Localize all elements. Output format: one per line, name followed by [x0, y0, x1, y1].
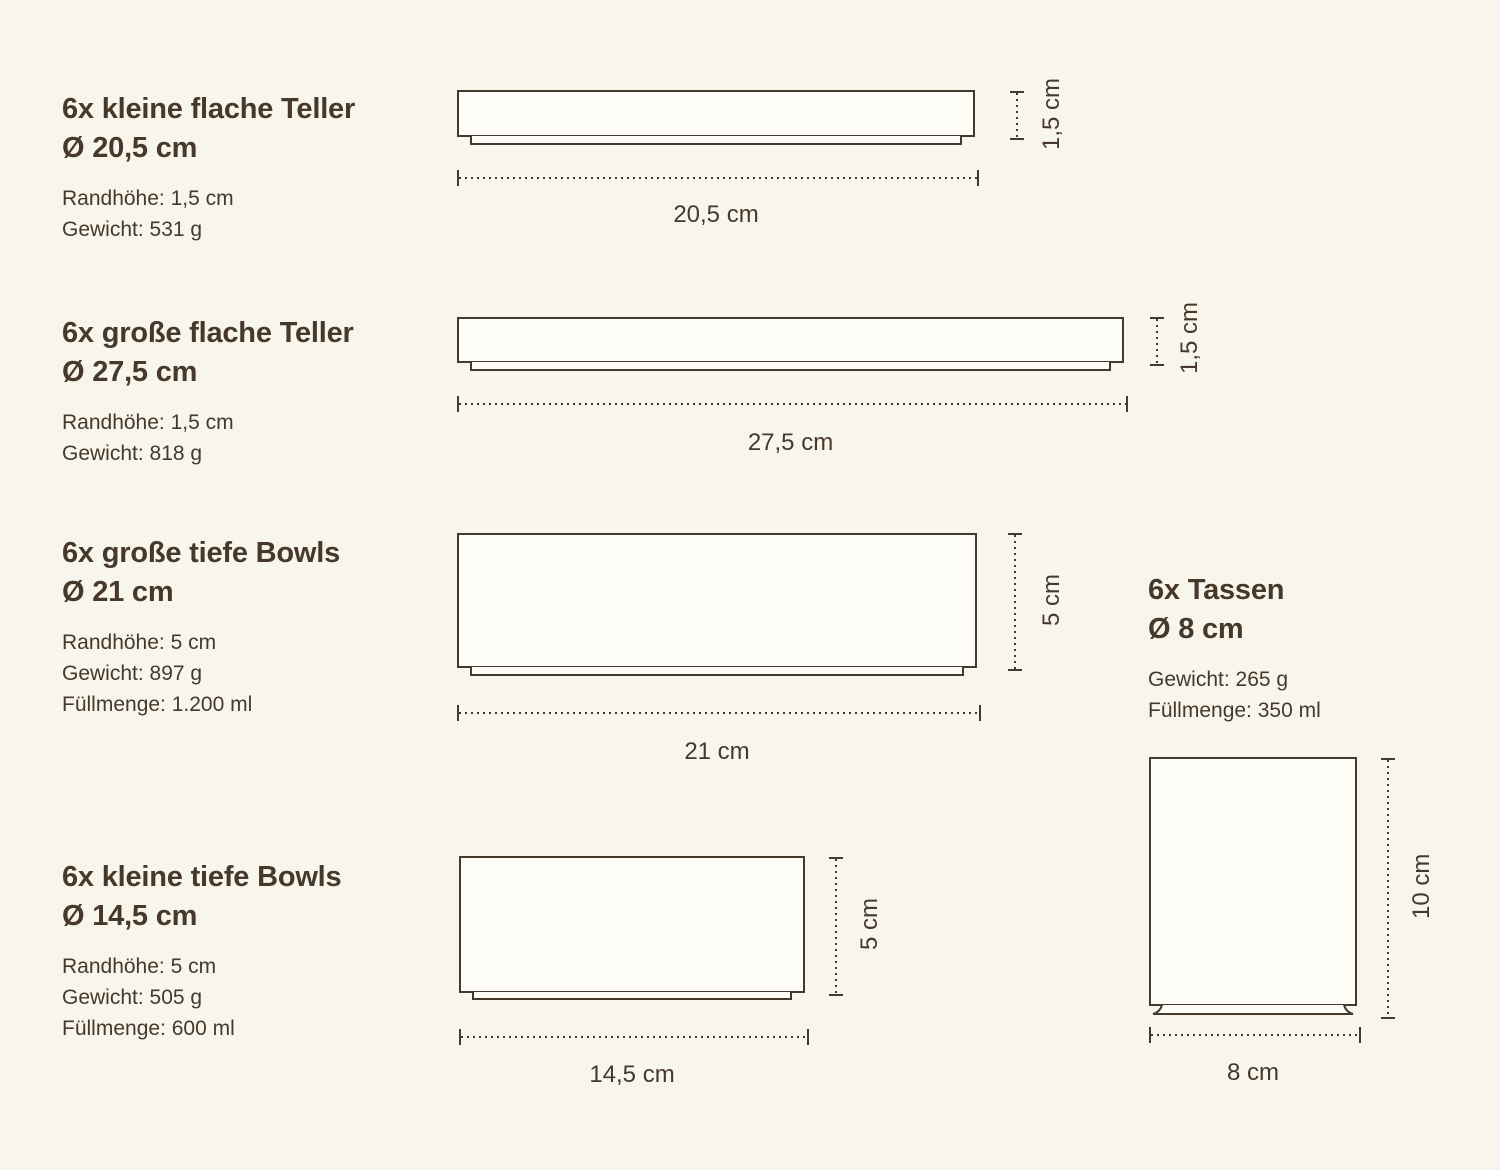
- width-dimension-line: [457, 170, 979, 186]
- large-deep-bowl-side-view: [457, 533, 977, 677]
- small-flat-plate-side-view: [457, 90, 975, 147]
- width-dimension-line: [459, 1029, 809, 1045]
- product-info-small-deep-bowls: 6x kleine tiefe Bowls Ø 14,5 cm Randhöhe…: [62, 858, 341, 1044]
- product-specs: Randhöhe: 1,5 cm Gewicht: 531 g: [62, 183, 355, 245]
- height-dimension-line: [1381, 758, 1395, 1019]
- product-specs: Randhöhe: 5 cm Gewicht: 505 g Füllmenge:…: [62, 951, 341, 1044]
- spec-line: Randhöhe: 1,5 cm: [62, 407, 354, 438]
- width-dimension-label: 8 cm: [1149, 1058, 1357, 1088]
- product-diameter: Ø 27,5 cm: [62, 353, 354, 392]
- product-title: 6x kleine tiefe Bowls: [62, 858, 341, 897]
- spec-line: Randhöhe: 5 cm: [62, 951, 341, 982]
- product-specs: Gewicht: 265 g Füllmenge: 350 ml: [1148, 664, 1321, 726]
- width-dimension-label: 27,5 cm: [457, 428, 1124, 458]
- spec-line: Gewicht: 265 g: [1148, 664, 1321, 695]
- product-diameter: Ø 20,5 cm: [62, 129, 355, 168]
- spec-line: Gewicht: 531 g: [62, 214, 355, 245]
- spec-line: Gewicht: 505 g: [62, 982, 341, 1013]
- width-dimension-label: 20,5 cm: [457, 200, 975, 230]
- product-info-cups: 6x Tassen Ø 8 cm Gewicht: 265 g Füllmeng…: [1148, 571, 1321, 726]
- cup-side-view: [1149, 757, 1359, 1017]
- spec-line: Randhöhe: 5 cm: [62, 627, 340, 658]
- product-info-large-flat-plates: 6x große flache Teller Ø 27,5 cm Randhöh…: [62, 314, 354, 469]
- product-specs: Randhöhe: 5 cm Gewicht: 897 g Füllmenge:…: [62, 627, 340, 720]
- product-diameter: Ø 14,5 cm: [62, 897, 341, 936]
- height-dimension-label: 5 cm: [1038, 552, 1068, 648]
- height-dimension-label: 1,5 cm: [1176, 286, 1206, 390]
- product-title: 6x große tiefe Bowls: [62, 534, 340, 573]
- height-dimension-line: [1150, 317, 1164, 366]
- height-dimension-line: [829, 857, 843, 996]
- width-dimension-label: 21 cm: [457, 737, 977, 767]
- spec-line: Füllmenge: 350 ml: [1148, 695, 1321, 726]
- width-dimension-line: [457, 705, 981, 721]
- width-dimension-line: [1149, 1027, 1361, 1043]
- product-title: 6x große flache Teller: [62, 314, 354, 353]
- product-title: 6x Tassen: [1148, 571, 1321, 610]
- height-dimension-label: 10 cm: [1408, 834, 1438, 938]
- width-dimension-label: 14,5 cm: [459, 1060, 805, 1090]
- spec-line: Gewicht: 818 g: [62, 438, 354, 469]
- product-info-small-flat-plates: 6x kleine flache Teller Ø 20,5 cm Randhö…: [62, 90, 355, 245]
- product-info-large-deep-bowls: 6x große tiefe Bowls Ø 21 cm Randhöhe: 5…: [62, 534, 340, 720]
- product-specs: Randhöhe: 1,5 cm Gewicht: 818 g: [62, 407, 354, 469]
- height-dimension-label: 5 cm: [856, 876, 886, 972]
- spec-line: Füllmenge: 600 ml: [62, 1013, 341, 1044]
- spec-line: Gewicht: 897 g: [62, 658, 340, 689]
- dinnerware-dimensions-diagram: 6x kleine flache Teller Ø 20,5 cm Randhö…: [0, 0, 1500, 1170]
- product-title: 6x kleine flache Teller: [62, 90, 355, 129]
- product-diameter: Ø 21 cm: [62, 573, 340, 612]
- small-deep-bowl-side-view: [459, 856, 805, 1001]
- large-flat-plate-side-view: [457, 317, 1124, 374]
- height-dimension-label: 1,5 cm: [1038, 62, 1068, 166]
- product-diameter: Ø 8 cm: [1148, 610, 1321, 649]
- height-dimension-line: [1010, 91, 1024, 140]
- spec-line: Füllmenge: 1.200 ml: [62, 689, 340, 720]
- spec-line: Randhöhe: 1,5 cm: [62, 183, 355, 214]
- width-dimension-line: [457, 396, 1128, 412]
- height-dimension-line: [1008, 533, 1022, 671]
